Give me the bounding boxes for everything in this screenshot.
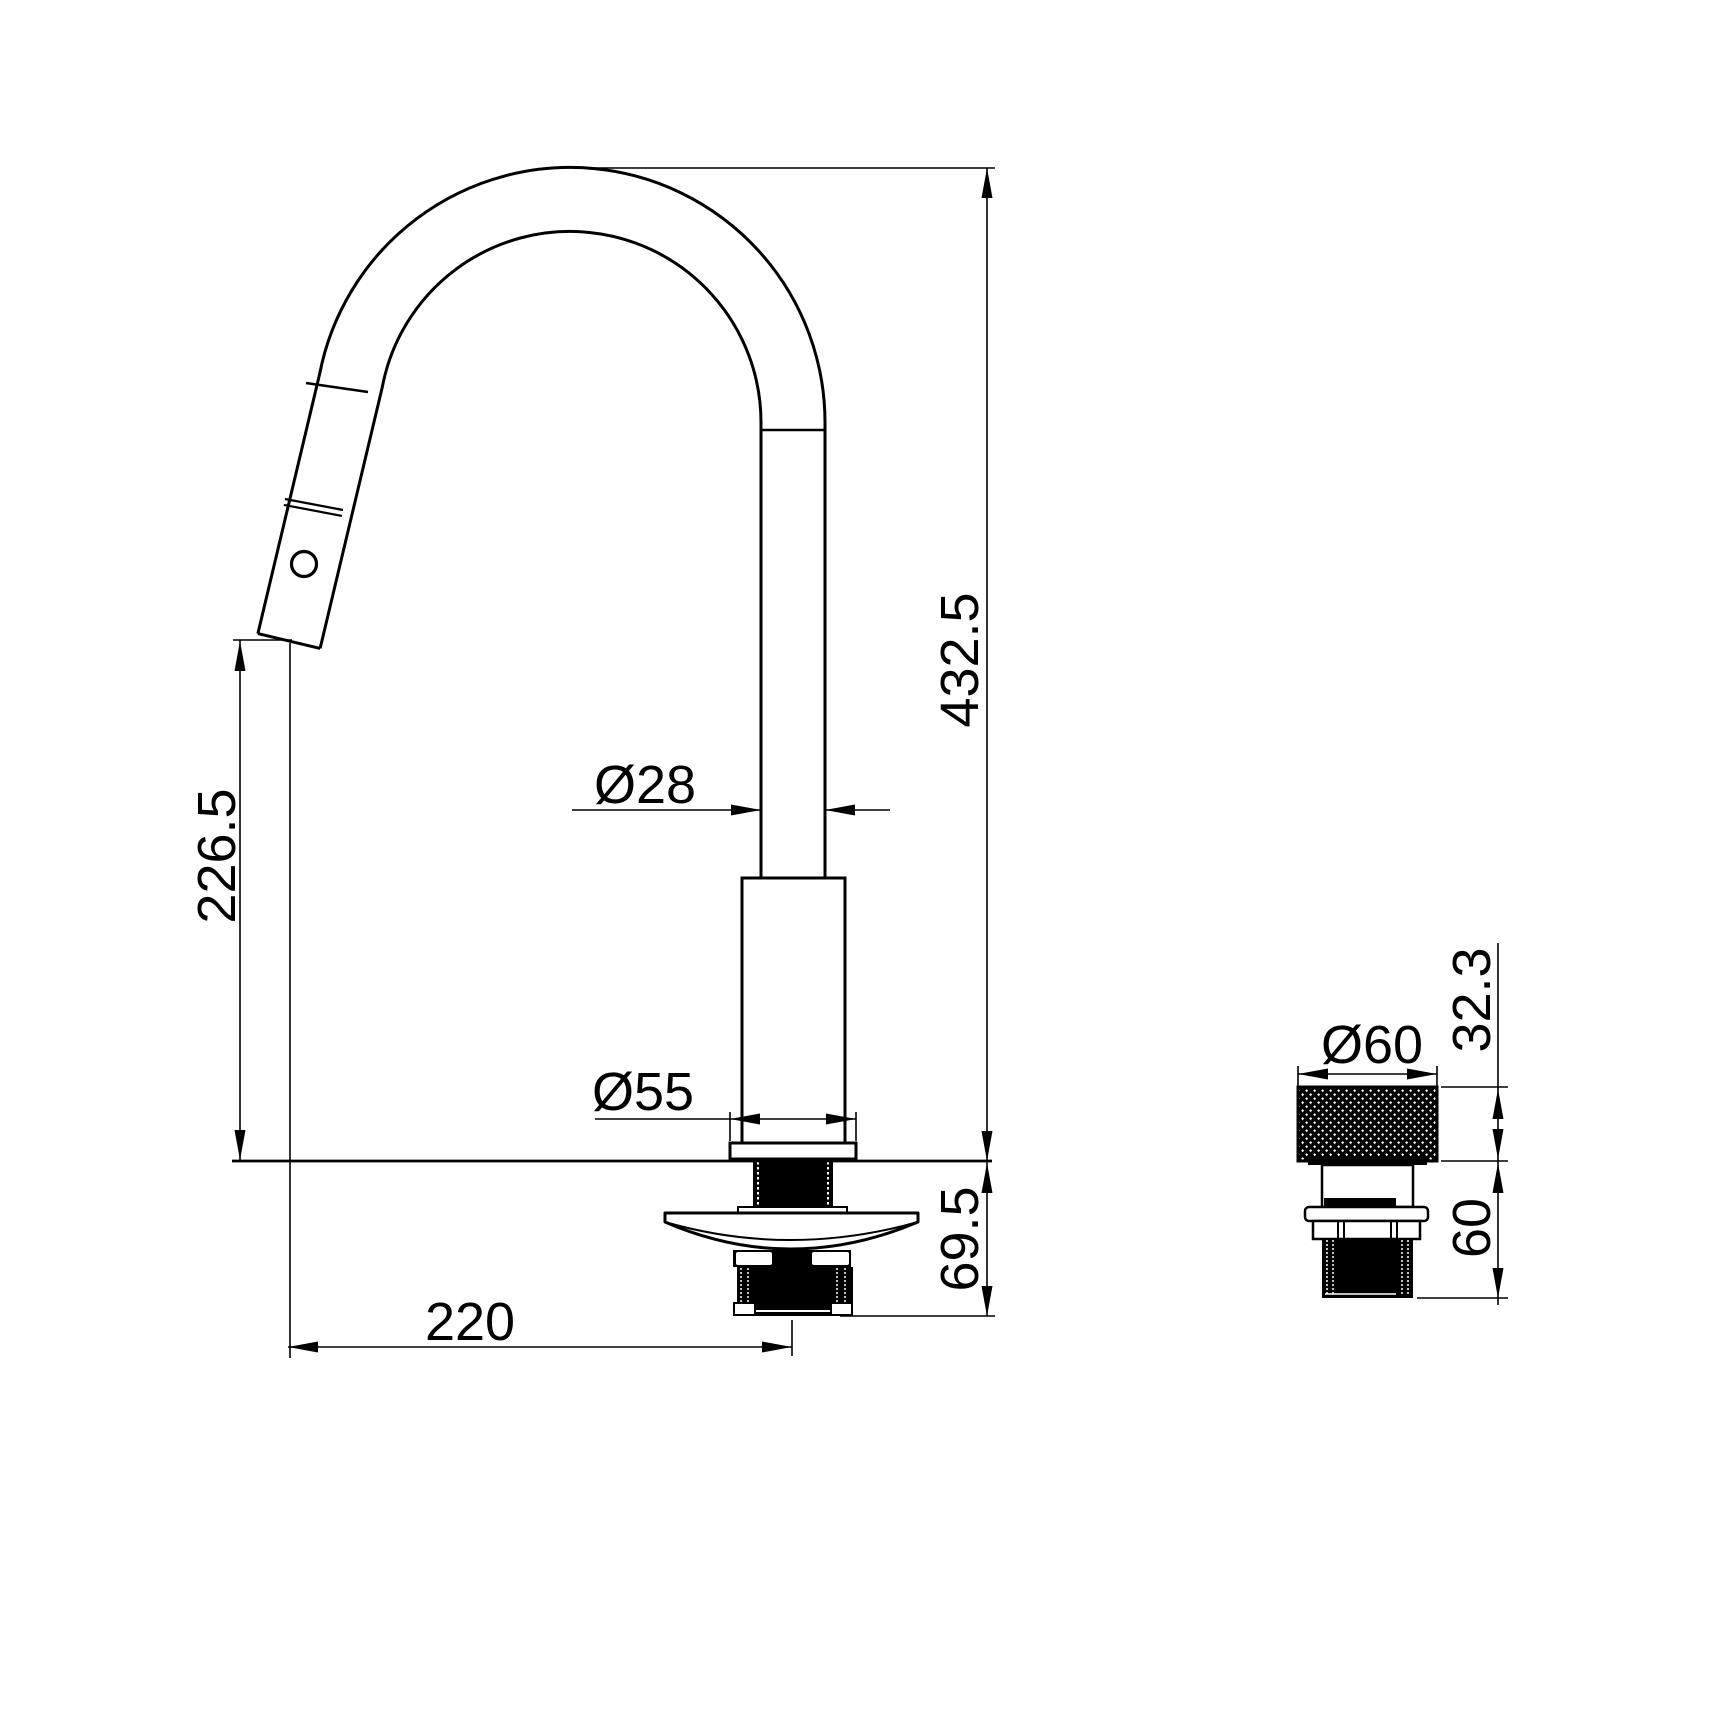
label-spout-outlet-height: 226.5 [187,788,247,923]
label-handle-height: 32.3 [1442,947,1502,1052]
label-below-deck-depth: 69.5 [930,1186,990,1291]
base-flange [730,1143,856,1159]
handle-flange-plate [1305,1207,1428,1221]
knurled-handle-knob [1298,1087,1437,1161]
technical-drawing-page: Ø28 Ø55 220 432.5 226.5 69.5 Ø60 32.3 60 [0,0,1733,1733]
label-overall-height: 432.5 [930,592,990,727]
faucet-dimension-drawing: Ø28 Ø55 220 432.5 226.5 69.5 Ø60 32.3 60 [0,0,1733,1733]
label-base-diameter: Ø55 [592,1062,694,1122]
threaded-shank-upper [753,1161,833,1207]
spray-button-icon [292,552,317,577]
shank-tab-left [734,1303,755,1315]
label-spout-reach: 220 [425,1292,515,1352]
handle-hex-nut [1313,1221,1420,1239]
label-spout-diameter: Ø28 [594,755,696,815]
label-handle-diameter: Ø60 [1321,1015,1423,1075]
neck-shadow-band [1324,1198,1396,1206]
label-handle-below-deck-depth: 60 [1442,1198,1502,1258]
faucet-body [742,878,845,1143]
paper-background [0,0,1733,1733]
threaded-shank-lower [755,1267,832,1316]
handle-threaded-shank [1322,1239,1413,1298]
shank-tab-right [831,1303,852,1315]
